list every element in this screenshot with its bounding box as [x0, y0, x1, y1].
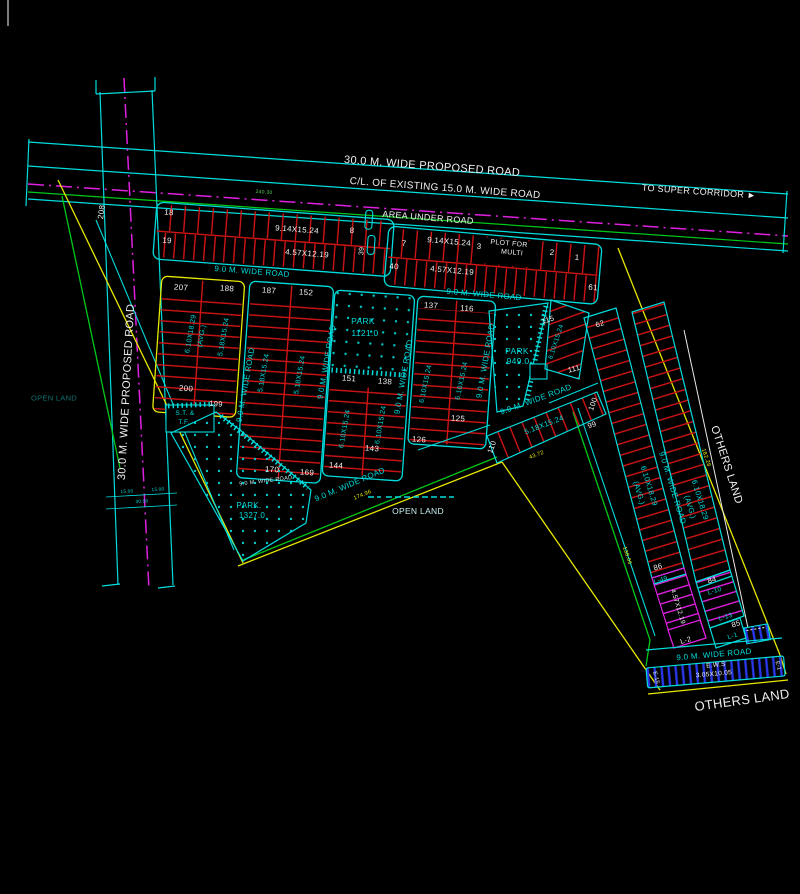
column-a — [153, 276, 245, 417]
column-c-with-park-1121 — [322, 290, 415, 481]
block-top-left — [153, 202, 395, 277]
block-top-right — [384, 226, 602, 304]
park-949 — [489, 303, 548, 412]
cad-canvas[interactable]: 30.0 M. WIDE PROPOSED ROADC/L. OF EXISTI… — [0, 0, 800, 894]
cad-linework — [0, 0, 800, 894]
strip-115-111 — [545, 300, 589, 379]
column-d — [408, 296, 496, 449]
